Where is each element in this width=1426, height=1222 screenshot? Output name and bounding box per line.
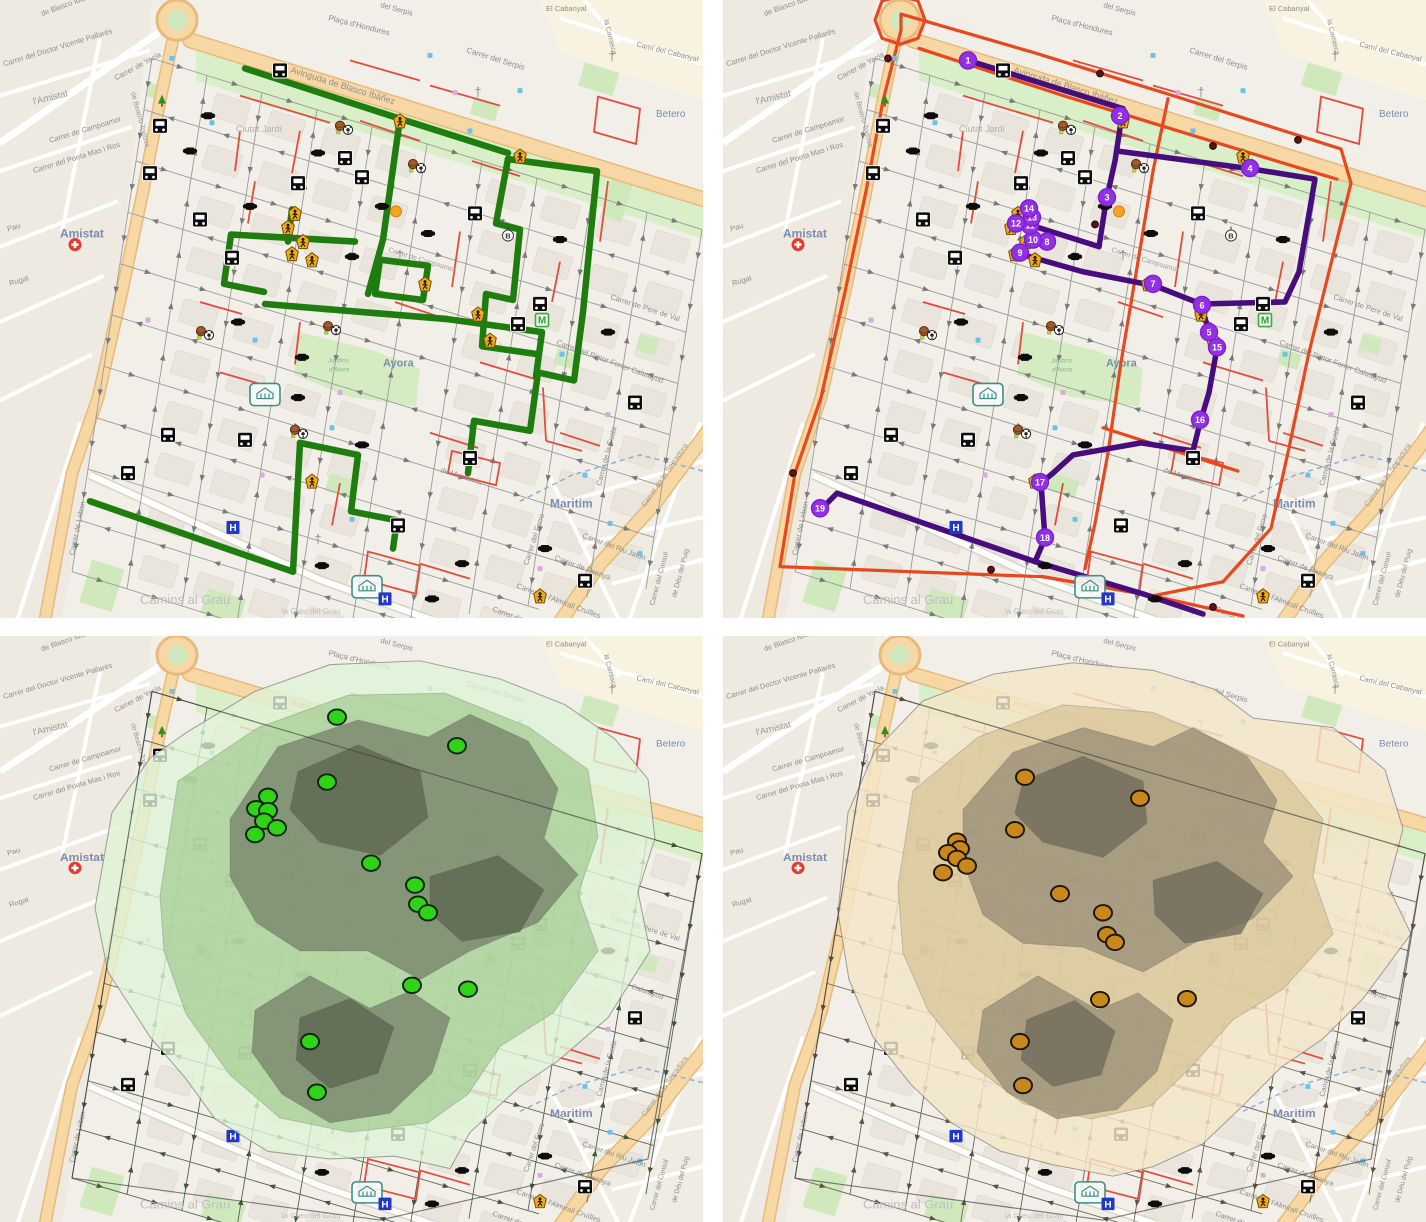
- bus-stop-icon: [996, 63, 1011, 78]
- bus-stop-icon: [153, 118, 168, 133]
- map-label: Betero: [656, 739, 686, 750]
- route-stop-marker-5[interactable]: 5: [1201, 324, 1218, 341]
- transit-stop-dot: [1053, 425, 1058, 430]
- svg-text:H: H: [381, 594, 388, 605]
- svg-text:15: 15: [1212, 342, 1222, 352]
- transit-stop-dot: [350, 517, 355, 522]
- route-stop-marker-3[interactable]: 3: [1099, 189, 1116, 206]
- museum-icon: [352, 1182, 382, 1203]
- svg-text:B: B: [1228, 231, 1234, 240]
- facility-dot: [246, 827, 264, 842]
- church-cross-icon: †: [474, 85, 481, 100]
- facility-dot: [1016, 770, 1034, 785]
- svg-text:5: 5: [1207, 327, 1212, 337]
- route-stop-marker-6[interactable]: 6: [1194, 296, 1211, 313]
- transit-stop-dot: [1331, 521, 1336, 526]
- bus-stop-icon: [533, 296, 548, 311]
- transit-stop-dot: [1306, 1084, 1311, 1089]
- shop-poi-dot: [606, 412, 611, 417]
- svg-text:B: B: [505, 231, 511, 240]
- transit-stop-dot: [253, 338, 258, 343]
- transit-stop-dot: [1361, 551, 1366, 556]
- map-label: El Cabanyal: [546, 4, 587, 13]
- svg-text:1: 1: [966, 56, 971, 66]
- shop-poi-dot: [1261, 566, 1266, 571]
- hospital-icon: H: [379, 1198, 392, 1211]
- bus-stop-icon: [238, 432, 253, 447]
- facility-dot: [459, 981, 477, 996]
- panel-green-route-network: de Blasco IbáñezCarrer del Doctor Vicent…: [0, 0, 703, 618]
- museum-icon: [1075, 1182, 1105, 1203]
- svg-text:H: H: [1104, 1199, 1111, 1210]
- church-cross-icon: †: [608, 48, 615, 63]
- map-label: Camins al Grau: [140, 592, 230, 607]
- transit-stop-dot: [468, 128, 473, 133]
- shop-poi-dot: [606, 1027, 611, 1032]
- facility-dot: [1091, 992, 1109, 1007]
- shop-poi-dot: [538, 566, 543, 571]
- bus-stop-icon: [225, 250, 240, 265]
- facility-dot: [419, 905, 437, 920]
- bus-stop-icon: [1351, 1011, 1366, 1025]
- map-label: Camins al Grau: [140, 1198, 230, 1212]
- svg-text:3: 3: [1105, 193, 1110, 203]
- bus-stop-icon: [355, 170, 370, 185]
- map-figure-grid: de Blasco IbáñezCarrer del Doctor Vicent…: [0, 0, 1426, 1222]
- facility-dot: [362, 855, 380, 870]
- transit-stop-dot: [428, 53, 433, 58]
- panel-green-density-contours: de Blasco IbáñezCarrer del Doctor Vicent…: [0, 636, 703, 1222]
- shop-poi-dot: [1261, 1173, 1266, 1178]
- map-label: Amistat: [60, 227, 104, 241]
- transit-stop-dot: [583, 473, 588, 478]
- transit-stop-dot: [1073, 517, 1078, 522]
- bus-stop-icon: [866, 166, 881, 181]
- shop-poi-dot: [146, 318, 151, 323]
- transit-stop-dot: [608, 521, 613, 526]
- facility-dot: [1094, 905, 1112, 920]
- bus-stop-icon: [1078, 170, 1093, 185]
- church-cross-icon: †: [608, 683, 615, 697]
- svg-text:H: H: [229, 523, 236, 534]
- bus-stop-icon: [628, 395, 643, 410]
- bus-stop-icon: [1351, 395, 1366, 410]
- map-label: la Creu del Grau: [1005, 1211, 1064, 1220]
- facility-dot: [448, 738, 466, 753]
- svg-text:4: 4: [1248, 163, 1253, 173]
- bus-stop-icon: [1234, 317, 1249, 332]
- route-stop-marker-7[interactable]: 7: [1145, 275, 1162, 292]
- svg-text:M: M: [1261, 316, 1269, 327]
- facility-dot: [1131, 791, 1149, 806]
- bus-stop-icon: [1301, 573, 1316, 588]
- map-label: Ayora: [383, 357, 415, 369]
- route-stop-marker-16[interactable]: 16: [1192, 411, 1209, 428]
- bus-stop-icon: [338, 150, 353, 165]
- route-stop-marker-2[interactable]: 2: [1112, 107, 1129, 124]
- map-label: Maritim: [1273, 1107, 1316, 1120]
- shop-poi-dot: [869, 318, 874, 323]
- map-label: Amistat: [783, 227, 827, 241]
- church-cross-icon: †: [396, 248, 403, 263]
- facility-dot: [958, 858, 976, 873]
- route-stop-marker-14[interactable]: 14: [1021, 200, 1038, 217]
- transit-stop-dot: [933, 120, 938, 125]
- shop-poi-dot: [453, 90, 458, 95]
- map-label: la Creu del Grau: [1005, 607, 1064, 616]
- svg-text:19: 19: [815, 504, 825, 514]
- map-label: Camins al Grau: [863, 592, 953, 607]
- facility-dot: [318, 774, 336, 789]
- transit-stop-dot: [1151, 53, 1156, 58]
- transit-stop-dot: [518, 88, 523, 93]
- bus-stop-icon: [468, 206, 483, 221]
- map-label: Jardins: [1050, 357, 1073, 364]
- transit-stop-dot: [638, 551, 643, 556]
- map-label: Amistat: [783, 851, 827, 864]
- map-label: la Creu del Grau: [282, 607, 341, 616]
- transit-stop-dot: [1306, 473, 1311, 478]
- transit-stop-dot: [210, 120, 215, 125]
- hospital-icon: H: [227, 521, 240, 534]
- bus-stop-icon: [844, 466, 859, 481]
- panel-brown-density-contours: de Blasco IbáñezCarrer del Doctor Vicent…: [723, 636, 1426, 1222]
- pharmacy-cross-icon: [69, 238, 82, 251]
- facility-dot: [328, 709, 346, 724]
- museum-icon: [250, 383, 280, 405]
- hospital-icon: H: [1102, 592, 1115, 605]
- panel-numbered-stop-routes: de Blasco IbáñezCarrer del Doctor Vicent…: [723, 0, 1426, 618]
- facility-dot: [403, 978, 421, 993]
- church-cross-icon: †: [1331, 683, 1338, 697]
- map-label: Ciutat Jardí: [236, 124, 282, 134]
- bus-stop-icon: [1191, 206, 1206, 221]
- map-canvas-numbered-routes[interactable]: de Blasco IbáñezCarrer del Doctor Vicent…: [723, 0, 1426, 618]
- pharmacy-cross-icon: [69, 862, 82, 874]
- shop-poi-dot: [1329, 412, 1334, 417]
- transit-stop-dot: [583, 1084, 588, 1089]
- facility-dot: [1051, 886, 1069, 901]
- bus-stop-icon: [578, 573, 593, 588]
- svg-text:10: 10: [1028, 235, 1038, 245]
- museum-icon: [352, 576, 382, 598]
- transit-stop-dot: [170, 689, 175, 694]
- facility-dot: [1006, 822, 1024, 837]
- metro-icon: M: [536, 314, 549, 327]
- route-stop-marker-18[interactable]: 18: [1037, 529, 1054, 546]
- route-stop-marker-15[interactable]: 15: [1209, 339, 1226, 356]
- museum-icon: [1075, 576, 1105, 598]
- hospital-icon: H: [1102, 1198, 1115, 1211]
- map-label: la Creu del Grau: [282, 1211, 341, 1220]
- svg-text:17: 17: [1035, 477, 1045, 487]
- route-stop-marker-12[interactable]: 12: [1008, 215, 1025, 232]
- bus-stop-icon: [273, 63, 288, 78]
- map-label: Betero: [1379, 739, 1409, 750]
- hospital-icon: H: [950, 521, 963, 534]
- svg-text:18: 18: [1040, 533, 1050, 543]
- facility-dot: [268, 820, 286, 835]
- bus-stop-icon: [1301, 1180, 1316, 1194]
- bus-stop-icon: [884, 427, 899, 442]
- hospital-icon: H: [950, 1130, 963, 1143]
- transit-stop-dot: [1283, 352, 1288, 357]
- facility-dot: [1014, 1078, 1032, 1093]
- map-label: Maritim: [550, 1107, 593, 1120]
- transit-stop-dot: [976, 338, 981, 343]
- transit-stop-dot: [1191, 128, 1196, 133]
- map-label: d'Aiora: [329, 366, 349, 373]
- church-cross-icon: †: [1119, 248, 1126, 263]
- shop-poi-dot: [983, 473, 988, 478]
- map-label: d'Aiora: [1052, 366, 1072, 373]
- svg-text:2: 2: [1118, 111, 1123, 121]
- bus-stop-icon: [844, 1077, 859, 1091]
- svg-text:H: H: [229, 1132, 236, 1143]
- church-cross-icon: †: [314, 531, 321, 546]
- bus-stop-icon: [916, 212, 931, 227]
- bus-stop-icon: [961, 432, 976, 447]
- map-label: El Cabanyal: [1269, 4, 1310, 13]
- transit-stop-dot: [893, 56, 898, 61]
- svg-text:H: H: [381, 1199, 388, 1210]
- transit-stop-dot: [560, 352, 565, 357]
- svg-text:M: M: [538, 316, 546, 327]
- map-label: Betero: [1379, 109, 1409, 120]
- bus-stop-icon: [161, 427, 176, 442]
- map-canvas-brown-density[interactable]: de Blasco IbáñezCarrer del Doctor Vicent…: [723, 636, 1426, 1222]
- pharmacy-cross-icon: [792, 862, 805, 874]
- bus-stop-icon: [193, 212, 208, 227]
- bus-stop-icon: [578, 1180, 593, 1194]
- map-label: Camins al Grau: [863, 1198, 953, 1212]
- bus-stop-icon: [628, 1011, 643, 1025]
- transit-stop-dot: [1241, 88, 1246, 93]
- bus-stop-icon: [463, 450, 478, 465]
- facility-dot: [1011, 1034, 1029, 1049]
- hospital-icon: H: [379, 592, 392, 605]
- facility-dot: [308, 1084, 326, 1099]
- shop-poi-dot: [338, 390, 343, 395]
- map-label: Betero: [656, 109, 686, 120]
- bus-stop-icon: [121, 1077, 136, 1091]
- orange-poi-dot: [1114, 206, 1125, 217]
- transit-stop-dot: [1331, 1130, 1336, 1135]
- bus-stop-icon: [948, 250, 963, 265]
- svg-text:H: H: [952, 1132, 959, 1143]
- route-stop-marker-4[interactable]: 4: [1242, 160, 1259, 177]
- map-canvas-green-routes[interactable]: de Blasco IbáñezCarrer del Doctor Vicent…: [0, 0, 703, 618]
- route-stop-marker-9[interactable]: 9: [1012, 244, 1029, 261]
- bus-stop-icon: [1186, 450, 1201, 465]
- bus-stop-icon: [1256, 296, 1271, 311]
- transit-stop-dot: [330, 425, 335, 430]
- map-label: Ciutat Jardí: [959, 124, 1005, 134]
- metro-icon: M: [1259, 314, 1272, 327]
- shop-poi-dot: [1176, 90, 1181, 95]
- svg-text:8: 8: [1045, 237, 1050, 247]
- bus-stop-icon: [1061, 150, 1076, 165]
- church-cross-icon: †: [1197, 85, 1204, 100]
- bus-stop-icon: [143, 166, 158, 181]
- shop-poi-dot: [260, 473, 265, 478]
- map-label: Maritim: [1273, 496, 1316, 510]
- svg-text:H: H: [1104, 594, 1111, 605]
- transit-stop-dot: [893, 689, 898, 694]
- bus-stop-icon: [121, 466, 136, 481]
- svg-text:16: 16: [1195, 415, 1205, 425]
- map-label: Maritim: [550, 496, 593, 510]
- facility-dot: [1178, 991, 1196, 1006]
- svg-text:6: 6: [1200, 300, 1205, 310]
- bus-stop-icon: [511, 317, 526, 332]
- svg-text:14: 14: [1024, 204, 1034, 214]
- bus-stop-icon: [876, 118, 891, 133]
- svg-text:12: 12: [1011, 219, 1021, 229]
- facility-dot: [1106, 935, 1124, 950]
- map-label: Jardins: [327, 357, 350, 364]
- facility-dot: [406, 877, 424, 892]
- facility-dot: [934, 865, 952, 880]
- map-label: El Cabanyal: [546, 640, 587, 649]
- map-canvas-green-density[interactable]: de Blasco IbáñezCarrer del Doctor Vicent…: [0, 636, 703, 1222]
- shop-poi-dot: [538, 1173, 543, 1178]
- facility-dot: [301, 1034, 319, 1049]
- church-cross-icon: †: [1331, 48, 1338, 63]
- bus-stop-icon: [1014, 176, 1029, 191]
- shop-poi-dot: [1061, 390, 1066, 395]
- route-stop-marker-17[interactable]: 17: [1032, 474, 1049, 491]
- transit-stop-dot: [170, 56, 175, 61]
- map-label: Amistat: [60, 851, 104, 864]
- orange-poi-dot: [391, 206, 402, 217]
- route-stop-marker-19[interactable]: 19: [812, 500, 829, 517]
- svg-text:7: 7: [1151, 279, 1156, 289]
- bus-stop-icon: [1114, 518, 1129, 533]
- pharmacy-cross-icon: [792, 238, 805, 251]
- transit-stop-dot: [608, 1130, 613, 1135]
- route-stop-marker-1[interactable]: 1: [960, 52, 977, 69]
- museum-icon: [973, 383, 1003, 405]
- bus-stop-icon: [291, 176, 306, 191]
- bus-stop-icon: [391, 518, 406, 533]
- map-label: El Cabanyal: [1269, 640, 1310, 649]
- svg-text:9: 9: [1018, 248, 1023, 258]
- svg-text:H: H: [952, 523, 959, 534]
